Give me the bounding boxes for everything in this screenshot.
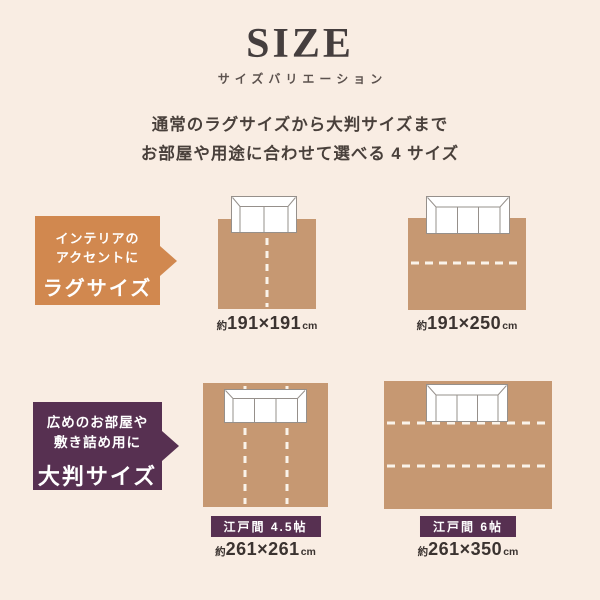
size-prefix: 約 xyxy=(217,320,228,332)
callout-large-size-title: 大判サイズ xyxy=(33,459,162,491)
size-unit: cm xyxy=(503,546,518,558)
size-caption-261x350: 約261×350cm xyxy=(418,539,519,560)
size-caption-261x261: 約261×261cm xyxy=(215,539,316,560)
sofa-3-seater-icon xyxy=(225,390,307,423)
callout-rug-size-lines: インテリアの アクセントに xyxy=(35,216,160,267)
page-subtitle: サイズバリエーション xyxy=(0,70,600,87)
badge-edoma-4-5: 江戸間 4.5帖 xyxy=(210,516,320,537)
description-line-2: お部屋や用途に合わせて選べる 4 サイズ xyxy=(0,140,600,169)
description-line-1: 通常のラグサイズから大判サイズまで xyxy=(0,111,600,140)
size-dimensions: 191×191 xyxy=(227,313,301,333)
callout-large-size-line2: 敷き詰め用に xyxy=(33,433,162,453)
size-infographic: SIZE サイズバリエーション 通常のラグサイズから大判サイズまで お部屋や用途… xyxy=(0,0,600,600)
size-dimensions: 261×350 xyxy=(428,539,502,559)
callout-rug-size-line2: アクセントに xyxy=(35,248,160,267)
size-prefix: 約 xyxy=(215,546,226,558)
size-caption-191x250: 約191×250cm xyxy=(417,313,518,334)
diagram-rug-261x261: 江戸間 4.5帖 約261×261cm xyxy=(203,383,328,507)
rug-illustration-261x261 xyxy=(203,383,328,507)
size-unit: cm xyxy=(302,320,317,332)
size-unit: cm xyxy=(301,546,316,558)
badge-edoma-6: 江戸間 6帖 xyxy=(420,516,516,537)
callout-rug-size: インテリアの アクセントに ラグサイズ xyxy=(35,216,160,305)
rug-illustration-261x350 xyxy=(384,381,552,509)
size-dimensions: 191×250 xyxy=(427,313,501,333)
page-title: SIZE xyxy=(0,22,600,66)
size-caption-191x191: 約191×191cm xyxy=(217,313,318,334)
diagram-rug-191x250: 約191×250cm xyxy=(408,196,526,310)
sofa-3-seater-icon xyxy=(427,197,510,234)
sofa-2-seater-icon xyxy=(232,197,297,233)
size-unit: cm xyxy=(502,320,517,332)
rug-illustration-191x191 xyxy=(218,196,316,309)
diagram-rug-261x350: 江戸間 6帖 約261×350cm xyxy=(384,381,552,509)
page-description: 通常のラグサイズから大判サイズまで お部屋や用途に合わせて選べる 4 サイズ xyxy=(0,111,600,169)
callout-rug-size-title: ラグサイズ xyxy=(35,272,160,301)
sofa-3-seater-icon xyxy=(427,385,508,422)
rug-illustration-191x250 xyxy=(408,196,526,310)
diagram-rug-191x191: 約191×191cm xyxy=(218,196,316,309)
callout-large-size-lines: 広めのお部屋や 敷き詰め用に xyxy=(33,402,162,453)
size-dimensions: 261×261 xyxy=(226,539,300,559)
callout-rug-size-line1: インテリアの xyxy=(35,229,160,248)
callout-large-size-line1: 広めのお部屋や xyxy=(33,413,162,433)
size-prefix: 約 xyxy=(417,320,428,332)
size-prefix: 約 xyxy=(418,546,429,558)
callout-large-size: 広めのお部屋や 敷き詰め用に 大判サイズ xyxy=(33,402,162,490)
